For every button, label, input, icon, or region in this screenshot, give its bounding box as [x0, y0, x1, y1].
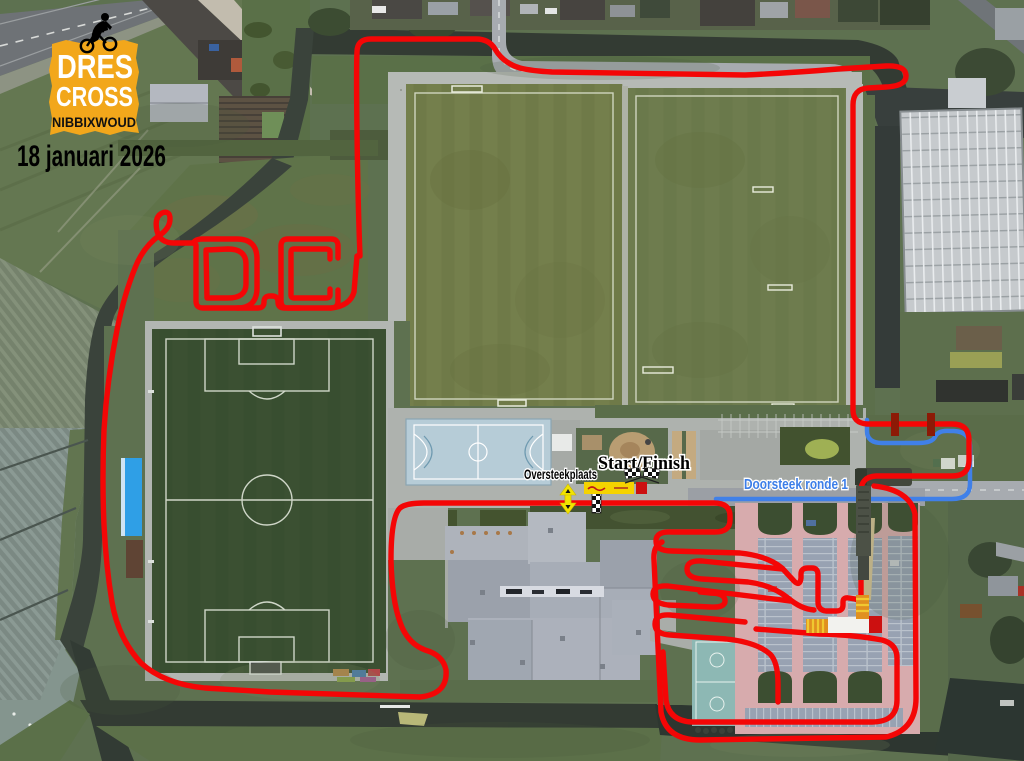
svg-text:Doorsteek ronde 1: Doorsteek ronde 1 — [744, 476, 848, 493]
svg-text:CROSS: CROSS — [56, 81, 133, 112]
svg-text:18 januari 2026: 18 januari 2026 — [17, 140, 166, 173]
svg-text:Oversteekplaats: Oversteekplaats — [524, 467, 597, 482]
svg-text:DRES: DRES — [57, 48, 133, 85]
svg-text:NIBBIXWOUD: NIBBIXWOUD — [52, 114, 136, 130]
